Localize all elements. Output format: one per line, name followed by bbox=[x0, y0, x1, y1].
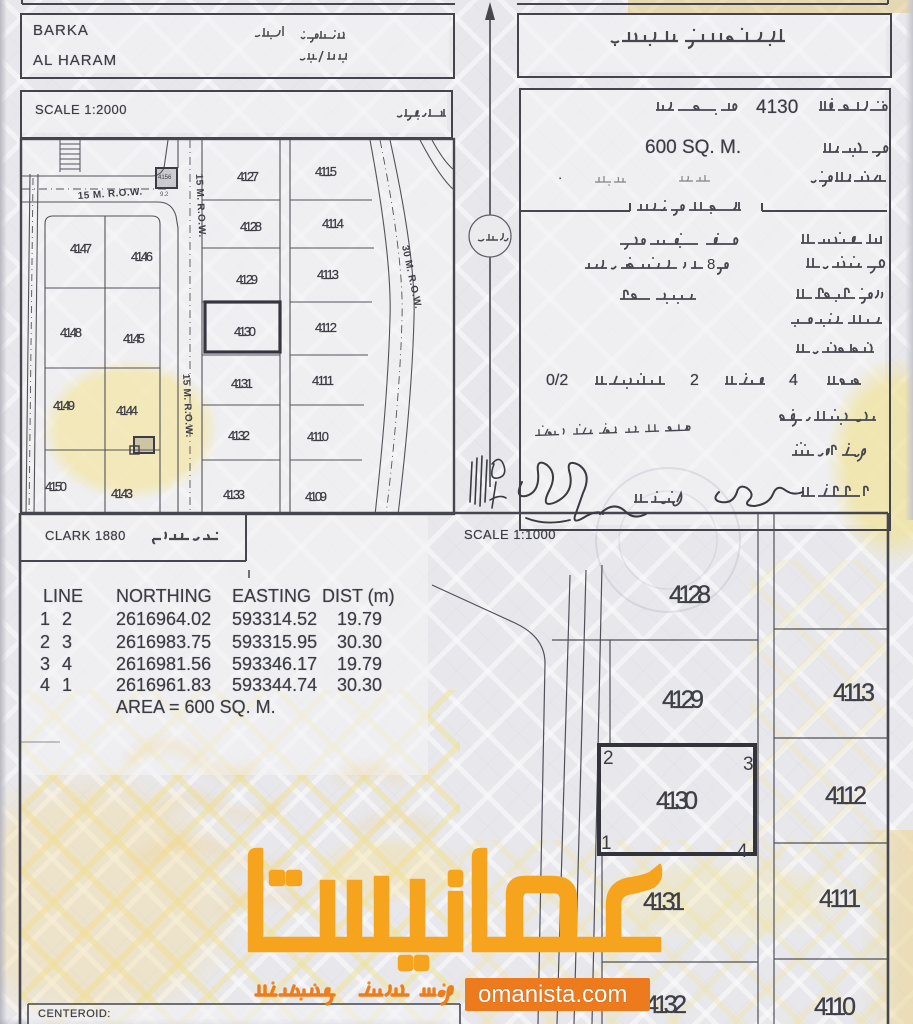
svg-text:3: 3 bbox=[743, 754, 754, 775]
svg-text:2: 2 bbox=[603, 748, 614, 769]
svg-text:15 M. R.O.W.: 15 M. R.O.W. bbox=[77, 186, 142, 201]
svg-text:4110: 4110 bbox=[307, 429, 329, 444]
svg-text:4147: 4147 bbox=[70, 241, 92, 256]
svg-text:4129: 4129 bbox=[236, 272, 258, 287]
svg-text:4128: 4128 bbox=[669, 581, 711, 609]
svg-text:4113: 4113 bbox=[833, 679, 875, 707]
svg-text:4112: 4112 bbox=[825, 782, 867, 810]
svg-text:4113: 4113 bbox=[317, 267, 339, 282]
svg-text:4148: 4148 bbox=[60, 325, 82, 340]
svg-text:4127: 4127 bbox=[237, 169, 259, 184]
svg-text:4111: 4111 bbox=[819, 885, 861, 913]
svg-text:8: 8 bbox=[707, 256, 715, 273]
svg-text:4143: 4143 bbox=[111, 486, 133, 501]
svg-text:4112: 4112 bbox=[315, 320, 337, 335]
svg-text:4144: 4144 bbox=[116, 403, 138, 418]
svg-text:15 M. R.O.W.: 15 M. R.O.W. bbox=[180, 374, 194, 438]
svg-text:4130: 4130 bbox=[656, 787, 698, 815]
svg-text:4145: 4145 bbox=[123, 331, 145, 346]
svg-text:4149: 4149 bbox=[53, 398, 75, 413]
svg-text:4156: 4156 bbox=[158, 175, 172, 181]
svg-text:4130: 4130 bbox=[234, 324, 256, 339]
svg-text:30 M. R.O.W.: 30 M. R.O.W. bbox=[399, 244, 423, 310]
svg-text:4131: 4131 bbox=[231, 376, 253, 391]
svg-text:4128: 4128 bbox=[240, 219, 262, 234]
svg-text:4115: 4115 bbox=[315, 164, 337, 179]
svg-text:4114: 4114 bbox=[322, 216, 344, 231]
svg-text:4132: 4132 bbox=[228, 428, 250, 443]
svg-text:15 M. R.O.W.: 15 M. R.O.W. bbox=[193, 174, 207, 238]
svg-text:4111: 4111 bbox=[312, 373, 334, 388]
svg-text:4150: 4150 bbox=[45, 479, 67, 494]
svg-text:4146: 4146 bbox=[131, 249, 153, 264]
svg-text:4129: 4129 bbox=[662, 686, 704, 714]
svg-text:9.2: 9.2 bbox=[160, 192, 169, 198]
svg-text:4: 4 bbox=[737, 841, 748, 862]
